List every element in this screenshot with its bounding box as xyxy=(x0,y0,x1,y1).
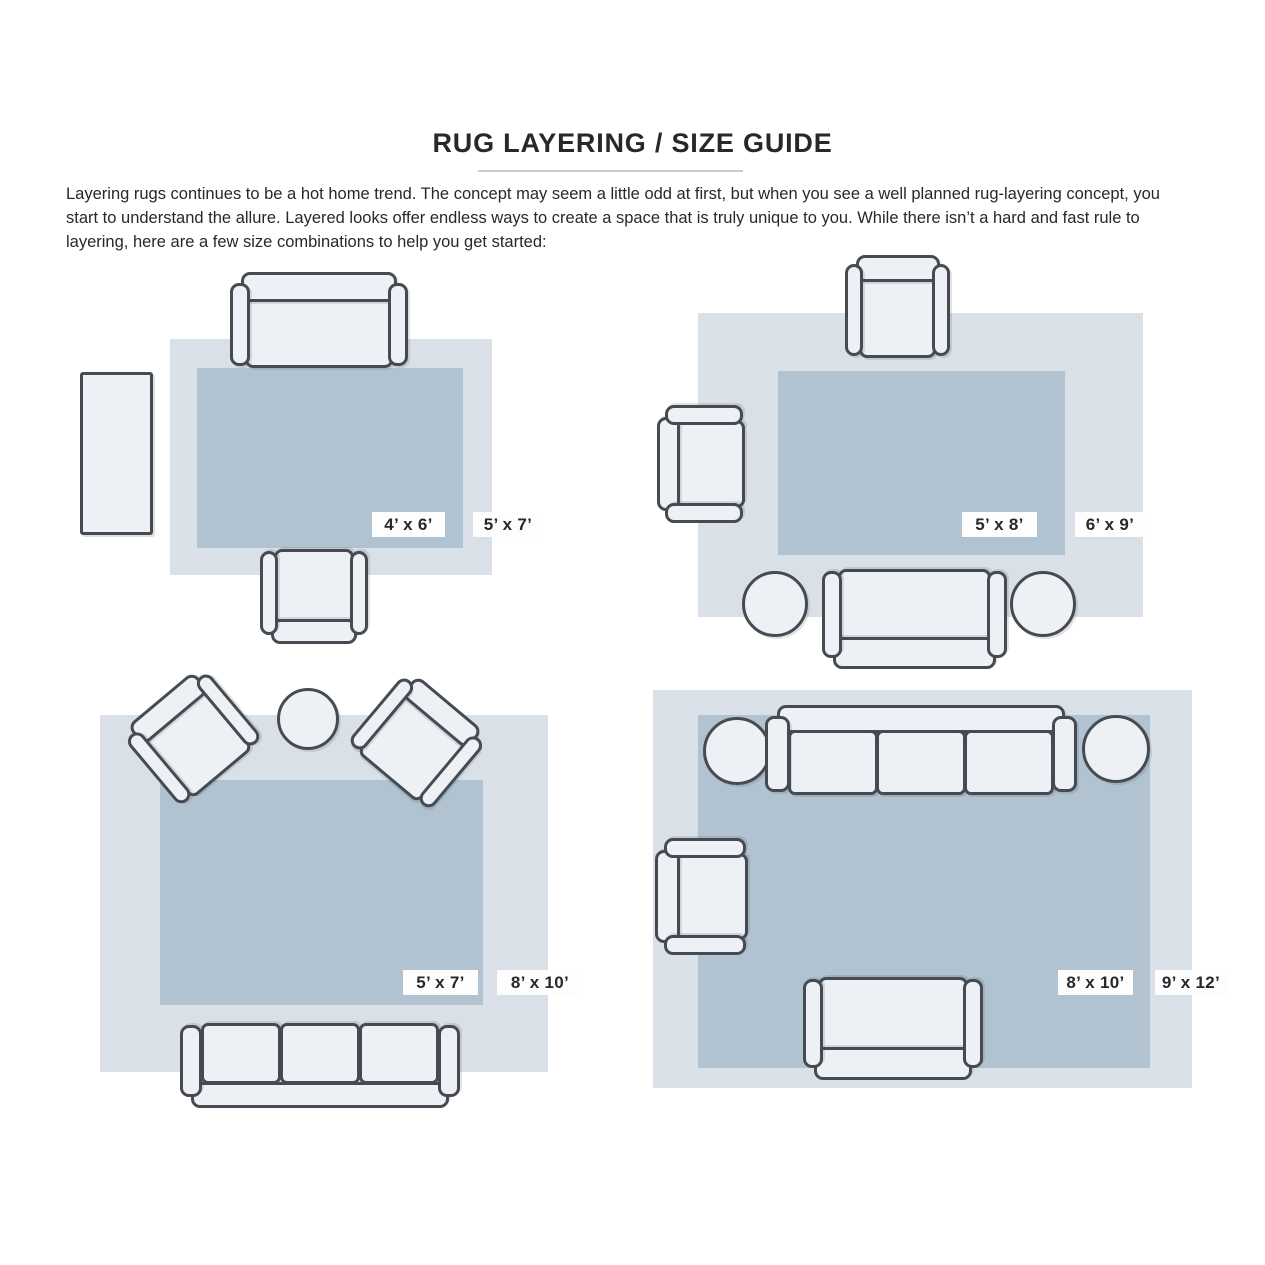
sofa-arm-right xyxy=(987,571,1007,658)
chair-arm-right xyxy=(664,838,747,858)
title-divider xyxy=(478,170,743,172)
sofa-seat xyxy=(818,977,967,1053)
sofa-seat xyxy=(838,569,992,642)
chair-back xyxy=(271,619,357,644)
sofa-arm-right xyxy=(388,283,408,366)
sofa-cushion xyxy=(788,730,877,795)
sofa-arm-right xyxy=(963,979,983,1068)
chair-back xyxy=(657,417,680,511)
sofa-cushion xyxy=(201,1023,281,1085)
sofa-back xyxy=(191,1082,449,1108)
large-rug-size-label: 6’ x 9’ xyxy=(1075,512,1145,537)
armchair-top xyxy=(845,255,950,360)
round-ottoman-left xyxy=(742,571,808,637)
chair-arm-right xyxy=(932,264,950,355)
sofa-back xyxy=(814,1047,972,1080)
three-seat-sofa xyxy=(765,705,1077,798)
chair-back xyxy=(655,850,680,944)
chair-arm-left xyxy=(664,935,747,955)
sofa-back xyxy=(241,272,398,302)
page-title: RUG LAYERING / SIZE GUIDE xyxy=(0,128,1265,159)
chair-arm-left xyxy=(845,264,863,355)
chair-arm-left xyxy=(260,551,278,635)
sofa-arm-left xyxy=(803,979,823,1068)
round-ottoman-left xyxy=(703,717,771,785)
loveseat-sofa xyxy=(230,272,408,370)
chair-seat xyxy=(674,853,748,940)
sofa-arm-left xyxy=(765,716,790,792)
chair-arm-right xyxy=(350,551,368,635)
large-rug-size-label: 5’ x 7’ xyxy=(473,512,543,537)
sofa-arm-left xyxy=(822,571,842,658)
intro-paragraph: Layering rugs continues to be a hot home… xyxy=(66,183,1191,254)
round-ottoman-right xyxy=(1010,571,1076,637)
sofa-back xyxy=(833,637,996,669)
armchair xyxy=(260,547,368,644)
chair-seat xyxy=(859,276,937,358)
small-rug-size-label: 5’ x 8’ xyxy=(962,512,1037,537)
sofa-cushion xyxy=(359,1023,439,1085)
chair-seat xyxy=(274,549,354,625)
sofa-arm-right xyxy=(1052,716,1077,792)
chair-arm-left xyxy=(665,503,743,523)
loveseat xyxy=(803,975,983,1080)
round-ottoman-right xyxy=(1082,715,1150,783)
sofa-cushion xyxy=(876,730,965,795)
sofa-cushion xyxy=(280,1023,360,1085)
sofa-arm-left xyxy=(230,283,250,366)
round-table xyxy=(277,688,339,750)
small-rug-size-label: 4’ x 6’ xyxy=(372,512,445,537)
sofa-cushion xyxy=(964,730,1053,795)
armchair-left xyxy=(655,838,750,955)
runner-rug xyxy=(80,372,153,535)
large-rug-size-label: 9’ x 12’ xyxy=(1155,970,1227,995)
chair-back xyxy=(856,255,940,282)
chair-arm-right xyxy=(665,405,743,425)
chair-seat xyxy=(675,420,745,507)
rug-size-guide-page: RUG LAYERING / SIZE GUIDE Layering rugs … xyxy=(0,0,1265,1265)
sofa xyxy=(822,567,1007,669)
sofa-seat xyxy=(245,297,393,368)
three-seat-sofa xyxy=(180,1020,460,1108)
sofa-back xyxy=(777,705,1064,733)
sofa-arm-left xyxy=(180,1025,202,1097)
small-rug-size-label: 8’ x 10’ xyxy=(1058,970,1133,995)
small-rug-size-label: 5’ x 7’ xyxy=(403,970,478,995)
sofa-arm-right xyxy=(438,1025,460,1097)
armchair-left xyxy=(657,405,747,523)
large-rug-size-label: 8’ x 10’ xyxy=(497,970,583,995)
